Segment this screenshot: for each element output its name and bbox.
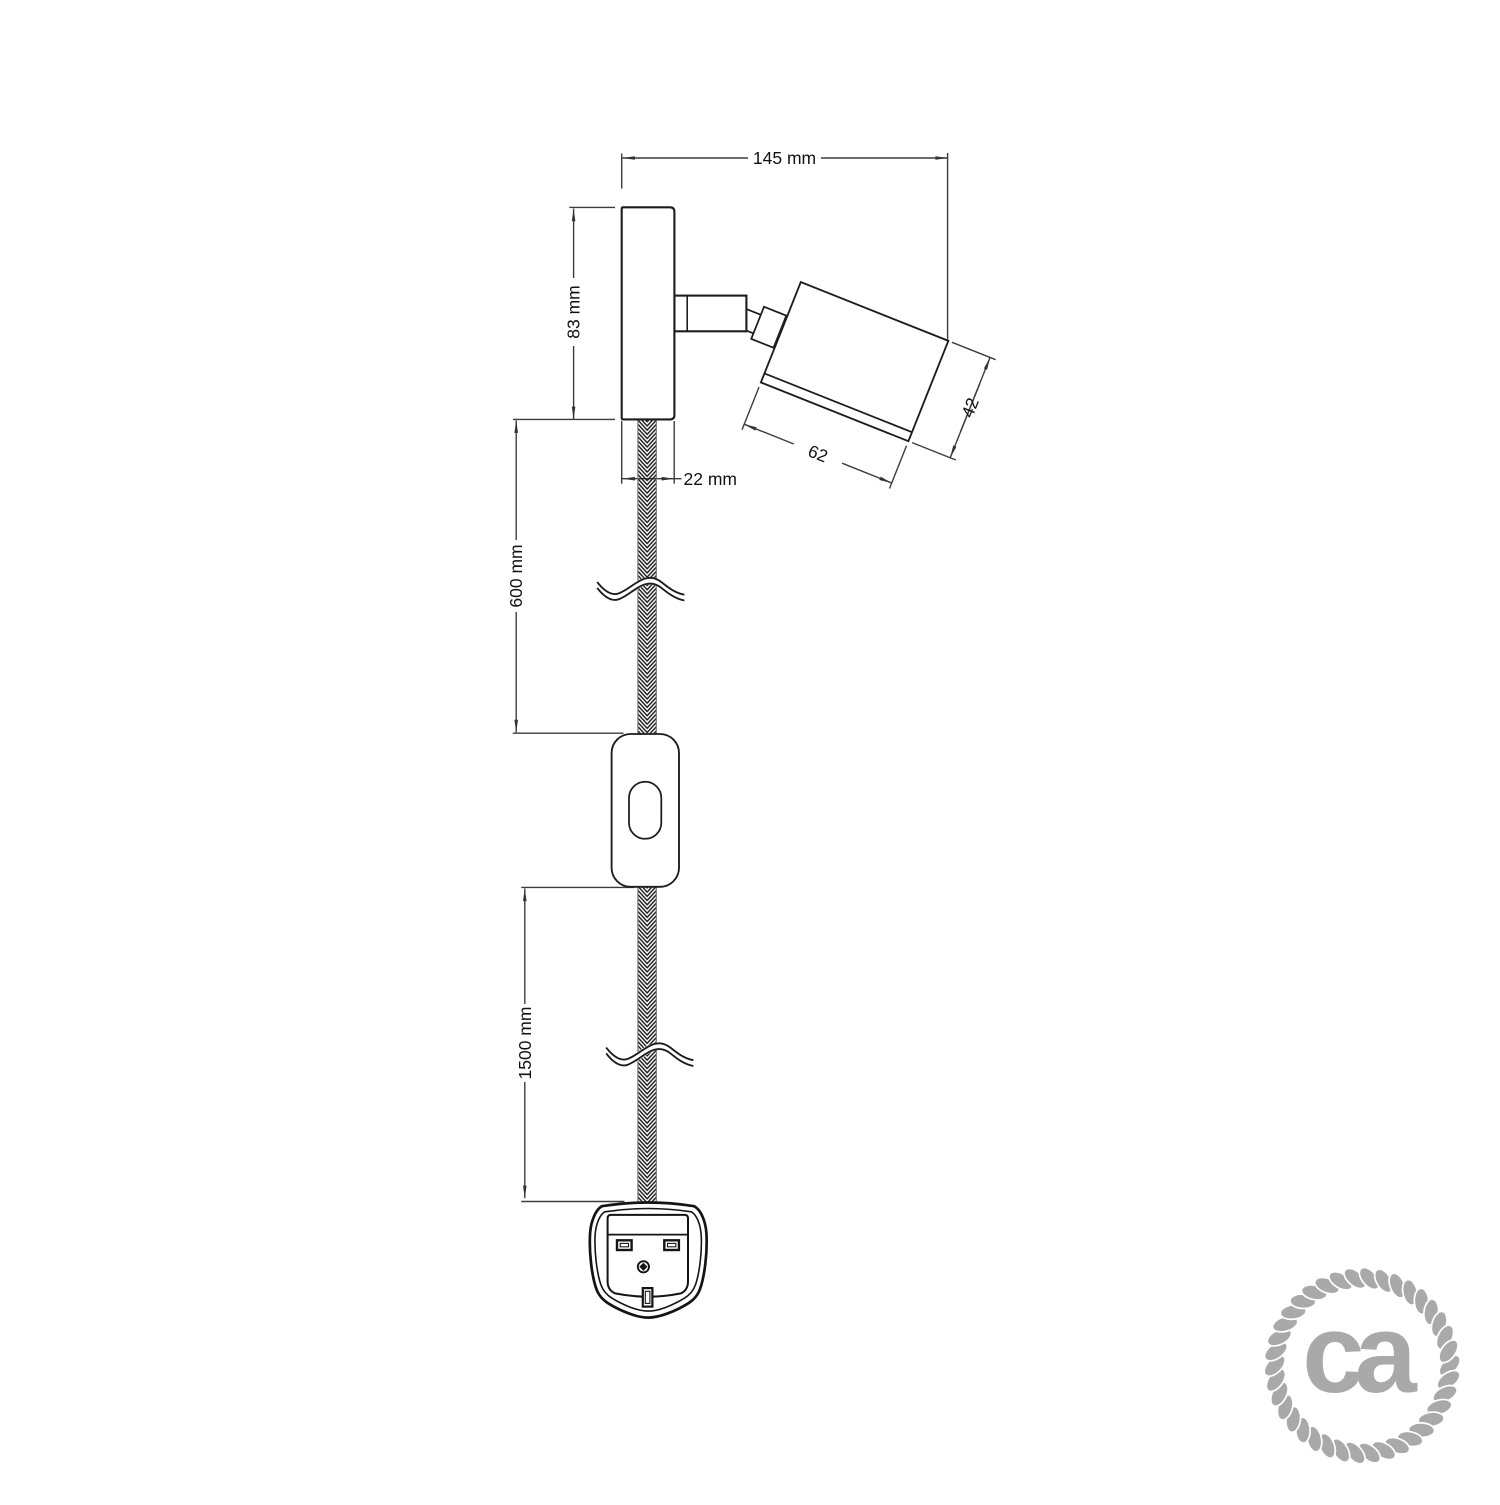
svg-text:22 mm: 22 mm — [684, 469, 737, 489]
svg-text:ca: ca — [1302, 1291, 1417, 1416]
svg-text:1500 mm: 1500 mm — [515, 1007, 535, 1080]
svg-text:145 mm: 145 mm — [753, 148, 816, 168]
svg-text:600 mm: 600 mm — [506, 544, 526, 607]
svg-text:83 mm: 83 mm — [564, 285, 584, 338]
